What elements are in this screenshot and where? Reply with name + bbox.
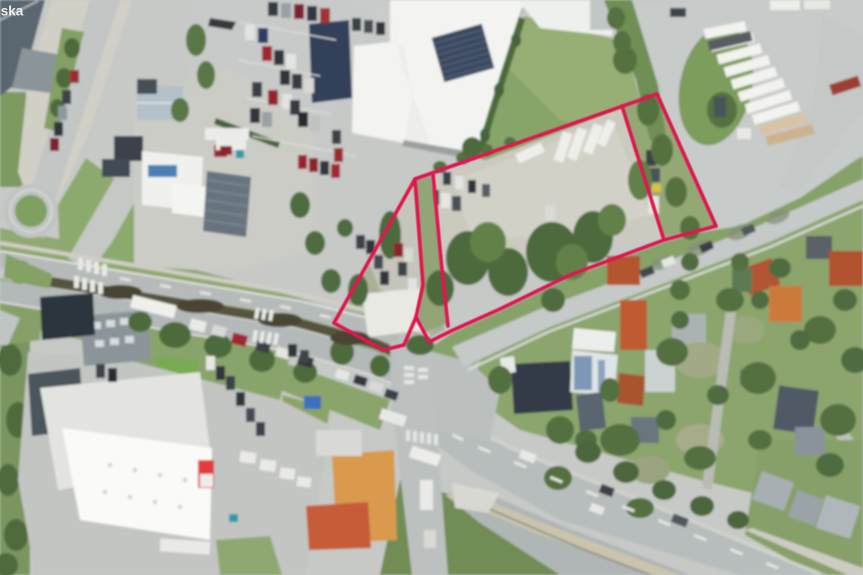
svg-text:lska: lska <box>0 4 24 19</box>
